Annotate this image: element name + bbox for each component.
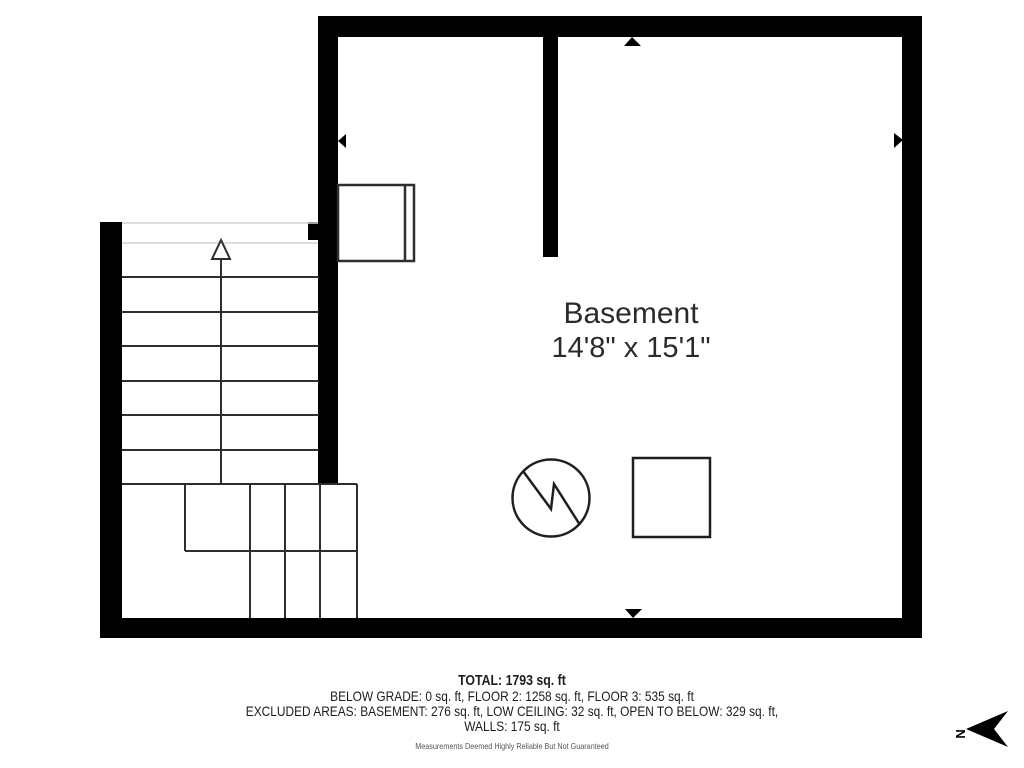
arrow-left-icon (338, 134, 346, 148)
floor-plan-drawing: N (0, 0, 1024, 768)
wall-interior (543, 37, 558, 257)
wall-bottom (100, 618, 922, 638)
north-compass: N (953, 711, 1008, 747)
wall-stair-notch (308, 222, 318, 240)
wall-left (100, 222, 122, 618)
room-label: Basement 14'8" x 15'1" (551, 296, 710, 366)
summary-line: EXCLUDED AREAS: BASEMENT: 276 sq. ft, LO… (77, 704, 947, 719)
arrow-down-icon (625, 609, 642, 618)
wall-stair-right (318, 16, 338, 484)
closet-outline (338, 185, 414, 261)
water-heater-symbol (513, 460, 590, 537)
summary-line: WALLS: 175 sq. ft (77, 719, 947, 734)
area-summary: TOTAL: 1793 sq. ft BELOW GRADE: 0 sq. ft… (77, 674, 947, 754)
summary-total: TOTAL: 1793 sq. ft (77, 674, 947, 689)
wall-top (318, 16, 922, 37)
disclaimer-text: Measurements Deemed Highly Reliable But … (77, 739, 947, 754)
summary-line: BELOW GRADE: 0 sq. ft, FLOOR 2: 1258 sq.… (77, 689, 947, 704)
stair-closet (338, 185, 414, 261)
north-arrow-icon (966, 711, 1008, 747)
wall-right (902, 16, 922, 638)
water-heater-zigzag (523, 471, 580, 525)
furnace-symbol (633, 458, 710, 537)
walls (100, 16, 922, 638)
floor-plan-page: N Basement 14'8" x 15'1" TOTAL: 1793 sq.… (0, 0, 1024, 768)
arrow-right-icon (894, 133, 903, 148)
north-label: N (953, 729, 968, 738)
room-dimensions: 14'8" x 15'1" (551, 331, 710, 366)
room-name: Basement (551, 296, 710, 331)
arrow-up-icon (624, 37, 641, 46)
